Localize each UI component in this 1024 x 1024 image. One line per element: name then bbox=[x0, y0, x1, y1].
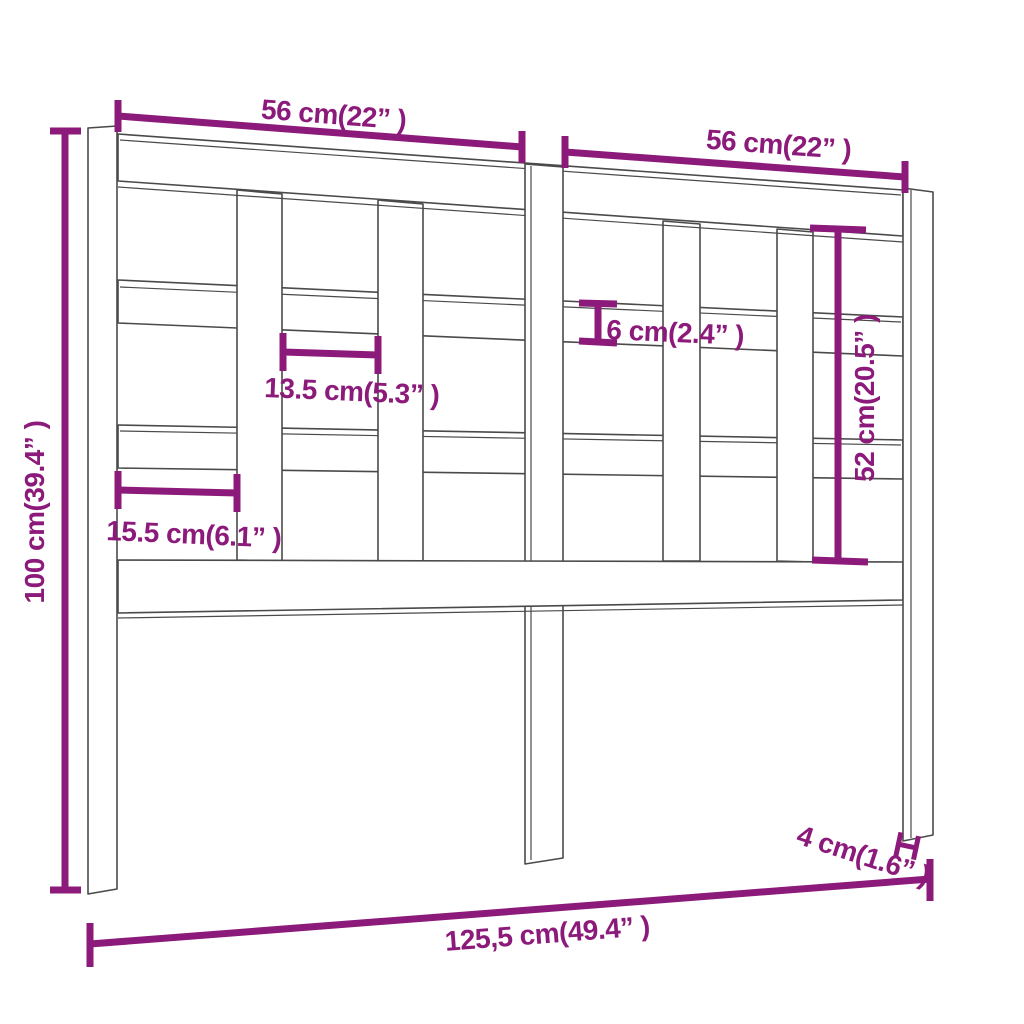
dim-label-post-to-slat-gap: 15.5 cm(6.1” ) bbox=[106, 515, 282, 554]
dim-label-top-right-width: 56 cm(22” ) bbox=[705, 124, 852, 166]
bottom-rail bbox=[118, 560, 903, 613]
diagram-page: 56 cm(22” ) 56 cm(22” ) 100 cm(39.4” ) 1… bbox=[0, 0, 1024, 1024]
dimension-panel-height: 52 cm(20.5” ) bbox=[810, 228, 880, 562]
dimension-total-width: 125,5 cm(49.4” ) bbox=[90, 859, 930, 967]
vertical-slat-3 bbox=[663, 221, 700, 561]
dim-label-panel-height: 52 cm(20.5” ) bbox=[849, 314, 880, 482]
vertical-slat-4 bbox=[777, 229, 813, 562]
left-post bbox=[88, 126, 117, 894]
dimension-total-height: 100 cm(39.4” ) bbox=[19, 131, 81, 891]
dim-label-rail-thickness: 6 cm(2.4” ) bbox=[606, 314, 745, 351]
right-post bbox=[903, 188, 933, 841]
dim-label-slat-to-slat-gap: 13.5 cm(5.3” ) bbox=[264, 372, 440, 411]
headboard-dimension-diagram: 56 cm(22” ) 56 cm(22” ) 100 cm(39.4” ) 1… bbox=[0, 0, 1024, 1024]
dim-label-total-height: 100 cm(39.4” ) bbox=[19, 421, 50, 604]
headboard-drawing bbox=[88, 126, 933, 894]
